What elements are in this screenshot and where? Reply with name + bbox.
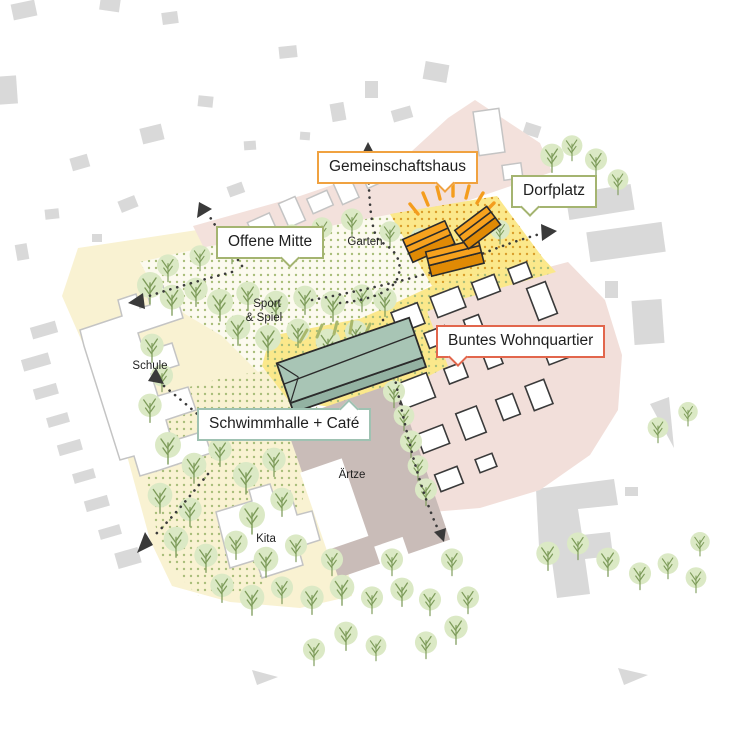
site-plan: Garten Sport & Spiel Schule Ärtze Kita G…: [0, 0, 740, 740]
callout-offene-mitte-label: Offene Mitte: [228, 233, 312, 250]
arrow-east: [541, 224, 557, 241]
callout-schwimmhalle-label: Schwimmhalle + Café: [209, 415, 359, 432]
map-label-kita: Kita: [256, 533, 276, 545]
arrow-northwest: [197, 202, 212, 218]
map-label-schule: Schule: [132, 360, 167, 372]
map-label-spiel: & Spiel: [246, 312, 282, 324]
callout-dorfplatz: Dorfplatz: [511, 175, 597, 208]
map-label-garten: Garten: [347, 236, 382, 248]
callout-schwimmhalle: Schwimmhalle + Café: [197, 408, 371, 441]
callout-dorfplatz-label: Dorfplatz: [523, 182, 585, 199]
callout-gemeinschaftshaus: Gemeinschaftshaus: [317, 151, 478, 184]
callout-offene-mitte: Offene Mitte: [216, 226, 324, 259]
map-label-aerzte: Ärtze: [339, 469, 366, 481]
callout-wohnquartier-label: Buntes Wohnquartier: [448, 332, 593, 349]
site-plan-drawing: Garten Sport & Spiel Schule Ärtze Kita: [0, 0, 740, 740]
callout-wohnquartier: Buntes Wohnquartier: [436, 325, 605, 358]
callout-gemeinschaftshaus-label: Gemeinschaftshaus: [329, 158, 466, 175]
map-label-sport: Sport: [253, 298, 281, 310]
